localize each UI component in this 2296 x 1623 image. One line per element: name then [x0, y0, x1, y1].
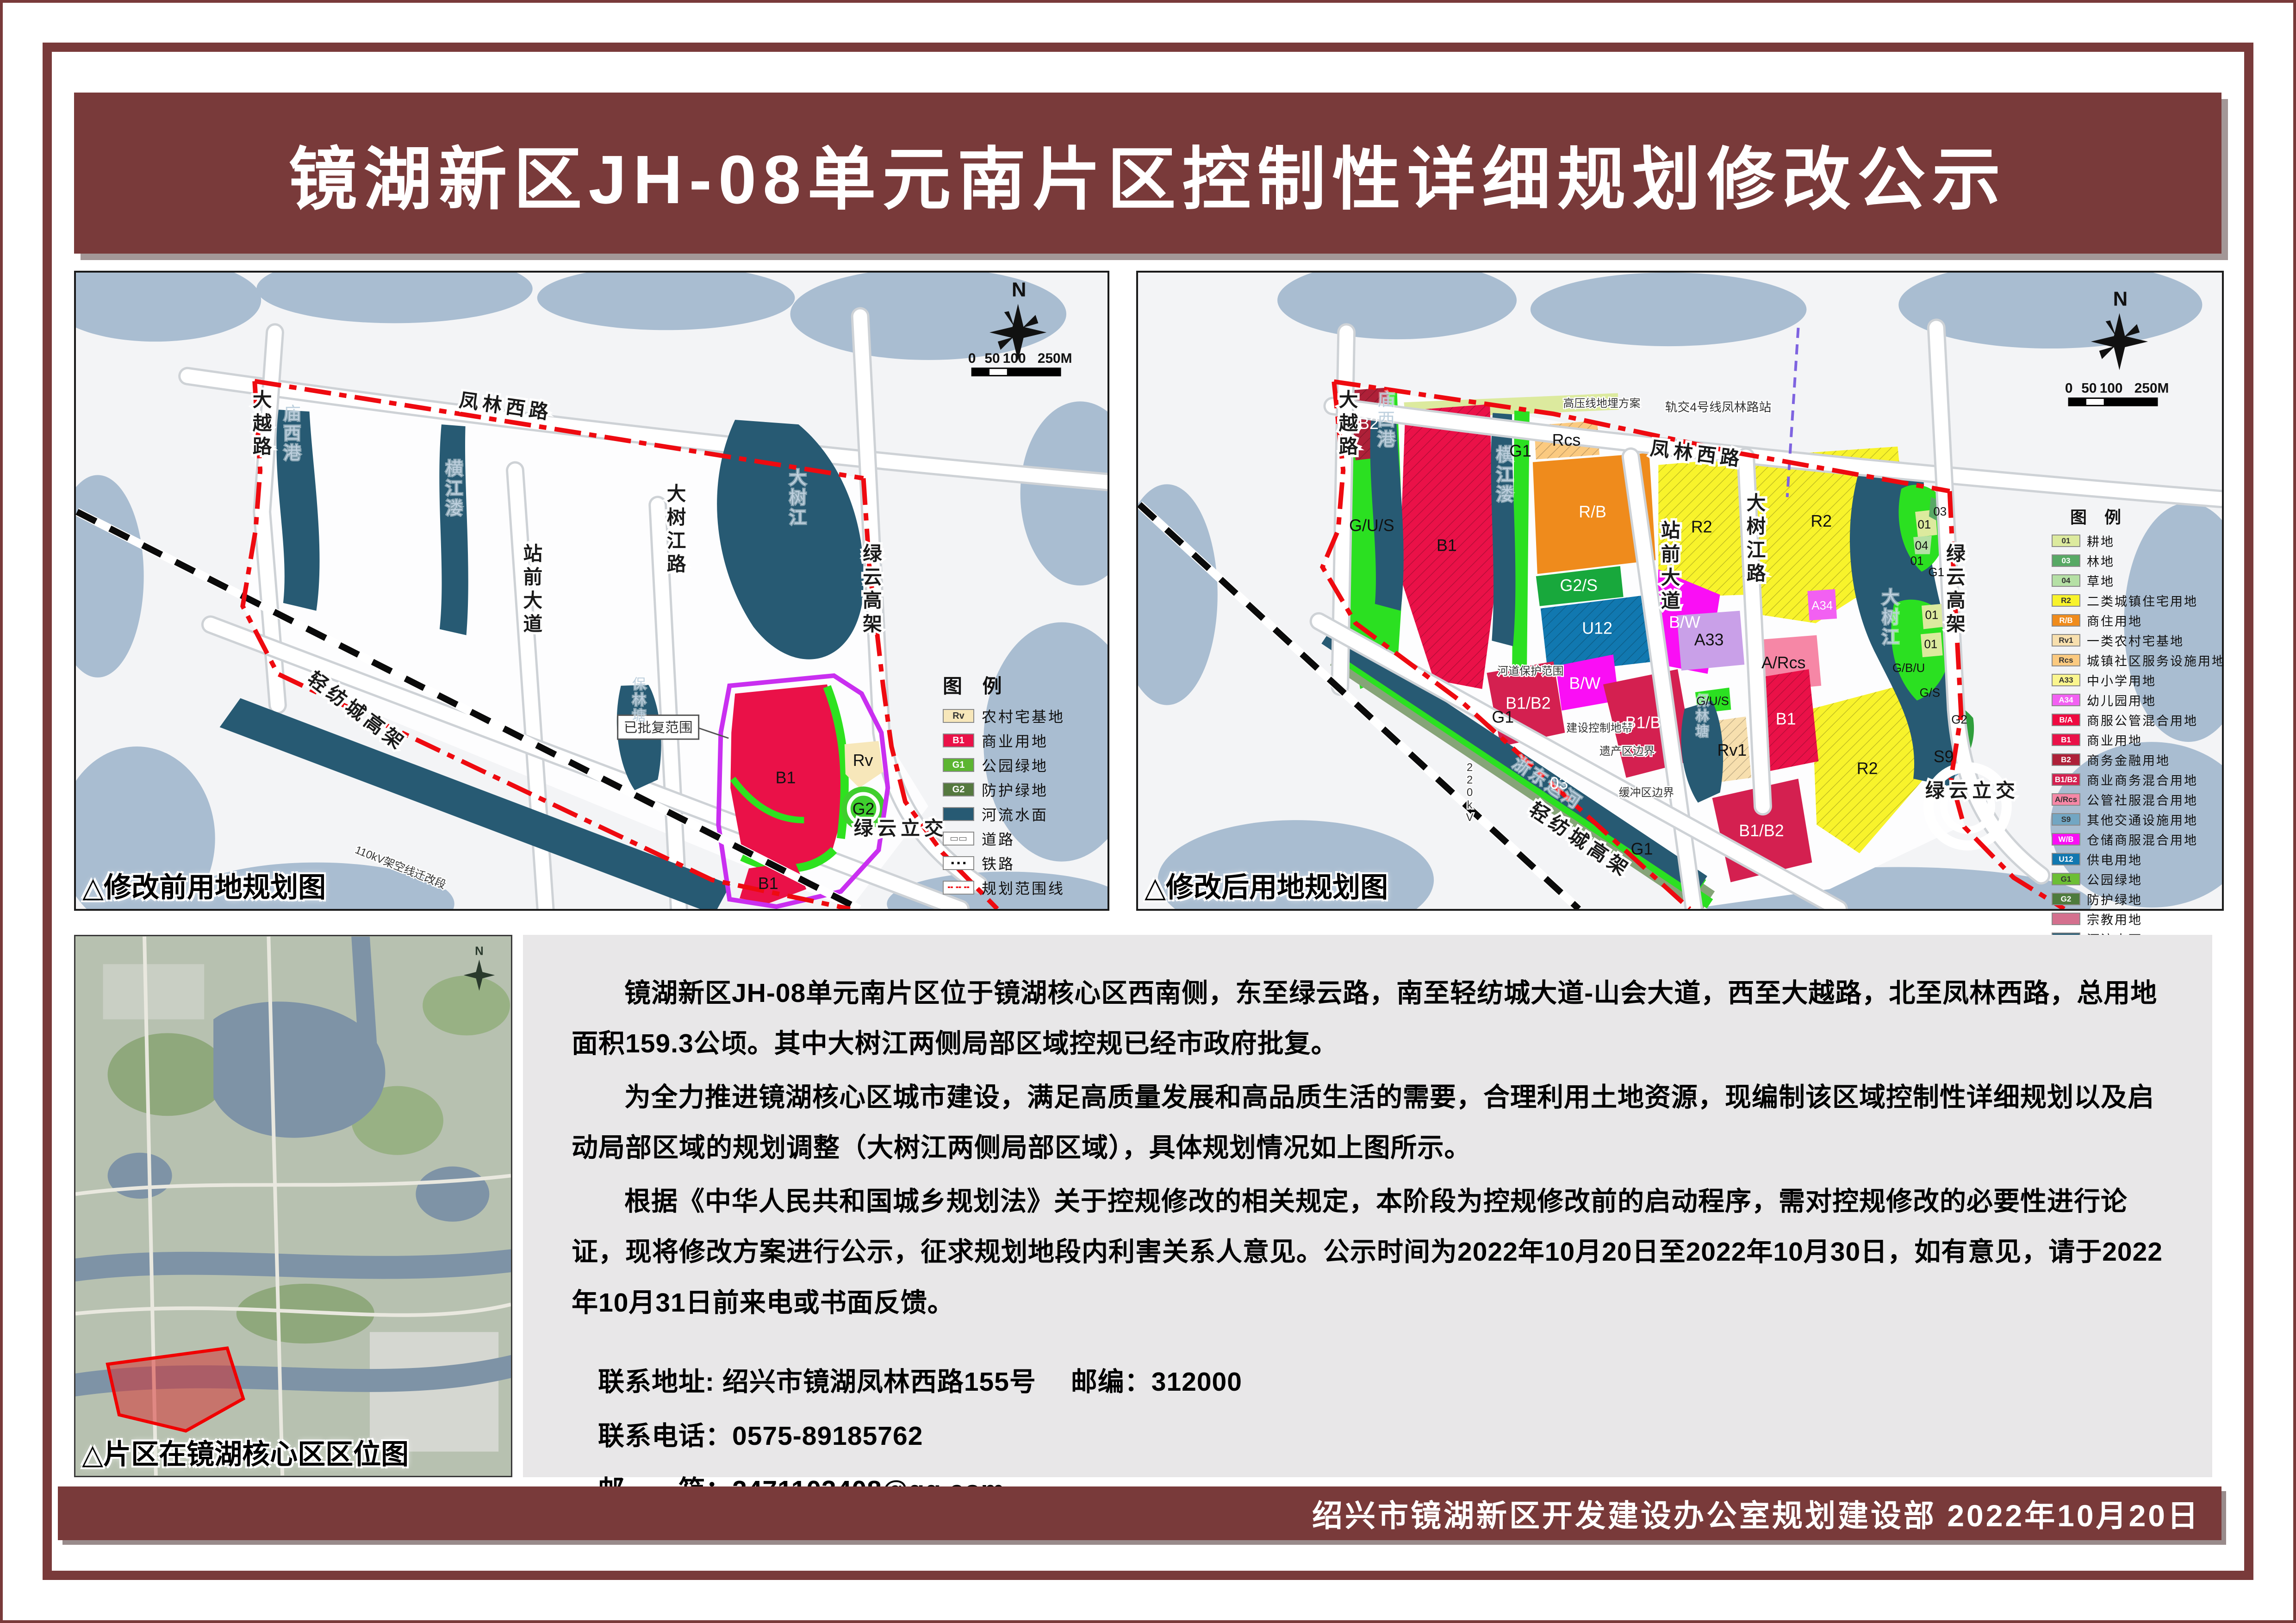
legend-label: 商住用地	[2087, 611, 2142, 629]
legend-label: 规划范围线	[982, 877, 1065, 898]
notice-paragraph: 为全力推进镜湖核心区城市建设，满足高质量发展和高品质生活的需要，合理利用土地资源…	[572, 1072, 2172, 1174]
legend-item: G1 公园绿地	[943, 754, 1100, 776]
road-label: 绿云高架	[1944, 543, 1966, 637]
legend-item: B1 商业用地	[2052, 731, 2218, 749]
legend-item: ▭▭ 道路	[943, 828, 1100, 849]
legend-item: A33 中小学用地	[2052, 671, 2218, 689]
zone-label: G/S	[1920, 687, 1941, 700]
legend-before: 图 例 Rv 农村宅基地 B1 商业用地 G1 公园绿地	[943, 671, 1100, 902]
legend-swatch	[2052, 913, 2080, 925]
legend-item: B/A 商服公管混合用地	[2052, 711, 2218, 729]
zone-label: 01	[1918, 518, 1931, 531]
svg-text:N: N	[1012, 279, 1027, 301]
legend-swatch: Rv1	[2052, 634, 2080, 647]
road-label: 站前大道	[521, 543, 542, 637]
zone-label: Rv	[853, 751, 873, 770]
water-label: 横江溇	[442, 459, 462, 518]
note-label: 河道保护范围	[1497, 665, 1563, 678]
legend-label: 河流水面	[982, 803, 1048, 825]
legend-item: 01 耕地	[2052, 532, 2218, 550]
zone-label: A33	[1694, 630, 1724, 649]
legend-item: Rv1 一类农村宅基地	[2052, 631, 2218, 649]
legend-item: U12 供电用地	[2052, 850, 2218, 868]
legend-item: S9 其他交通设施用地	[2052, 810, 2218, 828]
zone-label: U12	[1582, 619, 1612, 637]
note-label: 遗产区边界	[1599, 745, 1655, 758]
zone-label: G/U/S	[1349, 516, 1394, 535]
legend-swatch: ▭▭	[943, 832, 974, 846]
legend-label: 公管社服混合用地	[2087, 790, 2198, 808]
zone-label: B1/B2	[1739, 821, 1784, 840]
legend-swatch: A/Rcs	[2052, 793, 2080, 806]
zone-label: G2/S	[1560, 576, 1598, 595]
zone-label: G2	[1951, 713, 1967, 726]
legend-label: 宗教用地	[2087, 910, 2142, 928]
legend-item: G2 防护绿地	[2052, 890, 2218, 908]
legend-swatch: R/B	[2052, 614, 2080, 627]
legend-label: 城镇社区服务设施用地	[2087, 651, 2226, 669]
legend-swatch: B2	[2052, 753, 2080, 766]
zone-label: G1	[1492, 708, 1514, 726]
road-label: 绿云立交	[854, 817, 948, 839]
zone-label: G2	[852, 800, 875, 818]
zone-label: S9	[1934, 747, 1954, 766]
before-map-caption: △修改前用地规划图	[82, 865, 326, 905]
legend-swatch: Rcs	[2052, 654, 2080, 666]
note-label: 缓冲区边界	[1619, 786, 1674, 799]
legend-swatch: A33	[2052, 674, 2080, 686]
zone-label: 03	[1550, 774, 1568, 793]
legend-swatch: B/A	[2052, 714, 2080, 726]
map-after-panel: 凤林西路 大越路 站前大道 大树江路 绿云高架 轻纺城高架 绿云立交 轨交4号线…	[1136, 271, 2224, 911]
zone-label: B1/B2	[1625, 713, 1670, 732]
note-label: 建设控制地带	[1566, 722, 1632, 734]
zone-label: 03	[1933, 505, 1947, 518]
water-label: 保林塘	[630, 676, 646, 724]
zone-label: 04	[1915, 540, 1929, 553]
svg-text:50: 50	[2081, 380, 2097, 396]
legend-swatch: A34	[2052, 694, 2080, 706]
legend-item: 04 草地	[2052, 572, 2218, 590]
legend-label: 草地	[2087, 572, 2115, 590]
legend-item: G1 公园绿地	[2052, 870, 2218, 888]
legend-swatch: W/B	[2052, 833, 2080, 846]
svg-text:50: 50	[984, 351, 1000, 366]
legend-label: 二类城镇住宅用地	[2087, 591, 2198, 609]
zone-label: R2	[1811, 512, 1832, 530]
legend-title: 图 例	[943, 671, 1100, 699]
legend-item: 03 林地	[2052, 552, 2218, 570]
zone-label: 01	[1925, 609, 1938, 622]
svg-text:N: N	[2113, 288, 2128, 311]
road-label: 轨交4号线凤林路站	[1665, 400, 1772, 414]
road-label: 绿云立交	[1925, 779, 2019, 801]
legend-label: 中小学用地	[2087, 671, 2156, 689]
zone-label: G/U/S	[1696, 695, 1729, 708]
svg-text:100: 100	[2100, 380, 2123, 396]
legend-swatch: G1	[2052, 873, 2080, 885]
zone-label: R2	[1857, 759, 1878, 778]
legend-item: R/B 商住用地	[2052, 611, 2218, 629]
legend-label: 公园绿地	[2087, 870, 2142, 888]
legend-label: 商业用地	[2087, 731, 2142, 749]
road-label: 大树江路	[664, 483, 686, 577]
zone-label: G1	[1631, 840, 1653, 858]
legend-swatch: 03	[2052, 554, 2080, 567]
zone-label: A34	[1811, 599, 1833, 612]
road-label: 大越路	[1337, 389, 1358, 460]
legend-title: 图 例	[2070, 504, 2218, 528]
zone-label: G1	[1929, 566, 1944, 579]
legend-swatch: B1	[943, 734, 974, 747]
svg-text:0: 0	[2065, 380, 2073, 396]
after-map-caption: △修改后用地规划图	[1145, 865, 1388, 905]
svg-text:250M: 250M	[1038, 351, 1072, 366]
legend-label: 幼儿园用地	[2087, 691, 2156, 709]
note-label: 220kV	[1463, 761, 1476, 824]
zone-label: B1	[758, 874, 778, 893]
location-map-svg: N	[75, 936, 511, 1476]
road-label: 绿云高架	[860, 543, 882, 637]
legend-label: 道路	[982, 828, 1015, 849]
zone-label: B/W	[1669, 613, 1700, 632]
legend-item: ╍ ╍ ╍ 规划范围线	[943, 877, 1100, 898]
legend-label: 林地	[2087, 552, 2115, 570]
legend-after: 图 例 01 耕地 03 林地 04 草地	[2052, 504, 2218, 1009]
zone-label: G/B/U	[1892, 662, 1925, 675]
zone-label: B2	[1358, 414, 1379, 433]
legend-item: A/Rcs 公管社服混合用地	[2052, 790, 2218, 808]
zone-label: Rv1	[1717, 741, 1747, 759]
legend-item: Rv 农村宅基地	[943, 705, 1100, 727]
legend-item: ▪ ▪ ▪ 铁路	[943, 852, 1100, 874]
svg-text:0: 0	[968, 351, 976, 366]
legend-rows: Rv 农村宅基地 B1 商业用地 G1 公园绿地 G2	[943, 705, 1100, 898]
zone-label: B1	[776, 769, 796, 787]
zone-label: R2	[1691, 518, 1712, 536]
water-label: 大树江	[786, 468, 806, 528]
zone-label: B1	[1437, 536, 1457, 555]
legend-swatch	[943, 807, 974, 821]
svg-text:100: 100	[1003, 351, 1026, 366]
location-map-panel: N △片区在镜湖核心区区位图	[74, 935, 512, 1477]
legend-label: 防护绿地	[982, 779, 1048, 800]
contact-phone: 联系电话：0575-89185762	[572, 1409, 2172, 1463]
zone-label: A/Rcs	[1761, 653, 1805, 672]
road-label: 大越路	[250, 389, 272, 460]
legend-item: B1/B2 商业商务混合用地	[2052, 771, 2218, 789]
zone-label: B1	[1776, 709, 1796, 728]
legend-label: 仓储商服混合用地	[2087, 830, 2198, 848]
legend-swatch: U12	[2052, 853, 2080, 865]
legend-item: A34 幼儿园用地	[2052, 691, 2218, 709]
road-label: 大树江路	[1744, 492, 1766, 586]
legend-label: 商服公管混合用地	[2087, 711, 2198, 729]
zone-label: R/B	[1579, 503, 1606, 521]
legend-swatch: G2	[943, 783, 974, 796]
legend-swatch: G1	[943, 758, 974, 772]
notice-paragraph: 根据《中华人民共和国城乡规划法》关于控规修改的相关规定，本阶段为控规修改前的启动…	[572, 1176, 2172, 1328]
map-before-panel: 已批复范围 凤林西路 大越路 站前大道 大树江路 绿云高架 轻纺城高架 绿云立交…	[74, 271, 1109, 911]
legend-item: 河流水面	[943, 803, 1100, 825]
notice-text-panel: 镜湖新区JH-08单元南片区位于镜湖核心区西南侧，东至绿云路，南至轻纺城大道-山…	[523, 935, 2212, 1477]
legend-swatch: R2	[2052, 594, 2080, 607]
page-title: 镜湖新区JH-08单元南片区控制性详细规划修改公示	[288, 124, 2007, 223]
legend-item: Rcs 城镇社区服务设施用地	[2052, 651, 2218, 669]
legend-swatch: ▪ ▪ ▪	[943, 856, 974, 870]
legend-label: 商业商务混合用地	[2087, 771, 2198, 789]
zone-label: G1	[1509, 442, 1531, 460]
zone-label: B/W	[1569, 674, 1600, 693]
legend-label: 一类农村宅基地	[2087, 631, 2184, 649]
location-map-caption: △片区在镜湖核心区区位图	[82, 1432, 409, 1472]
zone-label: Rcs	[1552, 431, 1581, 449]
legend-item: R2 二类城镇住宅用地	[2052, 591, 2218, 609]
legend-swatch: B1/B2	[2052, 773, 2080, 786]
notice-paragraph: 镜湖新区JH-08单元南片区位于镜湖核心区西南侧，东至绿云路，南至轻纺城大道-山…	[572, 968, 2172, 1070]
legend-label: 公园绿地	[982, 754, 1048, 776]
footer-text: 绍兴市镜湖新区开发建设办公室规划建设部 2022年10月20日	[1312, 1491, 2200, 1536]
zone-label: 01	[1910, 554, 1924, 567]
contact-address: 联系地址: 绍兴市镜湖凤林西路155号 邮编：312000	[572, 1355, 2172, 1409]
legend-swatch: B1	[2052, 734, 2080, 746]
legend-item: 宗教用地	[2052, 910, 2218, 928]
legend-item: B2 商务金融用地	[2052, 751, 2218, 769]
legend-label: 其他交通设施用地	[2087, 810, 2198, 828]
legend-label: 耕地	[2087, 532, 2115, 550]
legend-swatch: S9	[2052, 813, 2080, 826]
legend-item: W/B 仓储商服混合用地	[2052, 830, 2218, 848]
water-label: 大树江	[1879, 588, 1898, 647]
zone-label: 01	[1924, 638, 1937, 651]
legend-item: G2 防护绿地	[943, 779, 1100, 800]
legend-label: 商业用地	[982, 730, 1048, 751]
legend-label: 防护绿地	[2087, 890, 2142, 908]
title-banner: 镜湖新区JH-08单元南片区控制性详细规划修改公示	[74, 93, 2221, 254]
road-label: 站前大道	[1659, 520, 1680, 614]
legend-swatch: 01	[2052, 535, 2080, 547]
svg-text:250M: 250M	[2134, 380, 2169, 396]
legend-swatch: G2	[2052, 893, 2080, 905]
legend-swatch: ╍ ╍ ╍	[943, 881, 974, 895]
svg-text:N: N	[475, 945, 484, 958]
note-label: 高压线地埋方案	[1563, 397, 1640, 410]
legend-label: 供电用地	[2087, 850, 2142, 868]
footer-bar: 绍兴市镜湖新区开发建设办公室规划建设部 2022年10月20日	[58, 1486, 2221, 1540]
notice-poster-page: 镜湖新区JH-08单元南片区控制性详细规划修改公示	[0, 0, 2296, 1623]
legend-item: B1 商业用地	[943, 730, 1100, 751]
legend-swatch: Rv	[943, 709, 974, 723]
legend-label: 商务金融用地	[2087, 751, 2170, 769]
legend-label: 农村宅基地	[982, 705, 1065, 727]
legend-swatch: 04	[2052, 574, 2080, 587]
water-label: 庙西港	[280, 404, 300, 463]
legend-label: 铁路	[982, 852, 1015, 874]
